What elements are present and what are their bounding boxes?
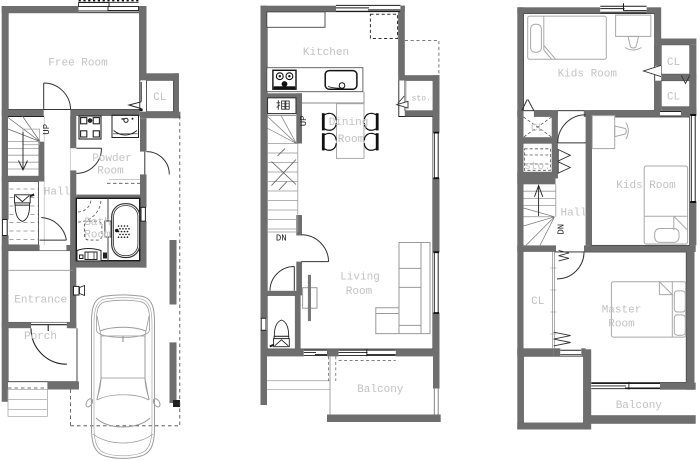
svg-text:Room: Room — [84, 230, 111, 242]
svg-text:Free Room: Free Room — [48, 58, 108, 70]
svg-text:CL: CL — [531, 296, 544, 308]
svg-text:Hall: Hall — [44, 187, 70, 199]
svg-text:Powder: Powder — [92, 153, 132, 165]
svg-text:Living: Living — [340, 272, 380, 284]
svg-text:UP: UP — [299, 115, 309, 126]
svg-text:Balcony: Balcony — [357, 384, 404, 396]
svg-text:UP: UP — [42, 124, 52, 135]
svg-text:Balcony: Balcony — [616, 400, 663, 412]
svg-text:CL: CL — [667, 57, 680, 69]
svg-text:Kids Room: Kids Room — [558, 68, 618, 80]
svg-text:DN: DN — [557, 224, 567, 235]
svg-text:CL: CL — [153, 92, 166, 104]
svg-text:Room: Room — [608, 318, 635, 330]
svg-text:Entrance: Entrance — [14, 295, 67, 307]
svg-text:Room: Room — [338, 134, 365, 146]
svg-text:Kitchen: Kitchen — [303, 47, 349, 59]
svg-text:Hall: Hall — [560, 208, 586, 220]
svg-text:CL: CL — [531, 123, 544, 135]
svg-text:Porch: Porch — [24, 331, 57, 343]
svg-text:Dining: Dining — [329, 117, 369, 129]
svg-text:CL: CL — [667, 92, 680, 104]
svg-text:sto.: sto. — [412, 94, 431, 103]
svg-text:DN: DN — [276, 233, 287, 243]
svg-text:sto.: sto. — [524, 161, 550, 173]
svg-text:Room: Room — [346, 286, 373, 298]
svg-text:Master: Master — [602, 305, 642, 317]
svg-text:Room: Room — [97, 166, 124, 178]
svg-text:Bath: Bath — [84, 217, 110, 229]
svg-text:Kids Room: Kids Room — [616, 180, 676, 192]
